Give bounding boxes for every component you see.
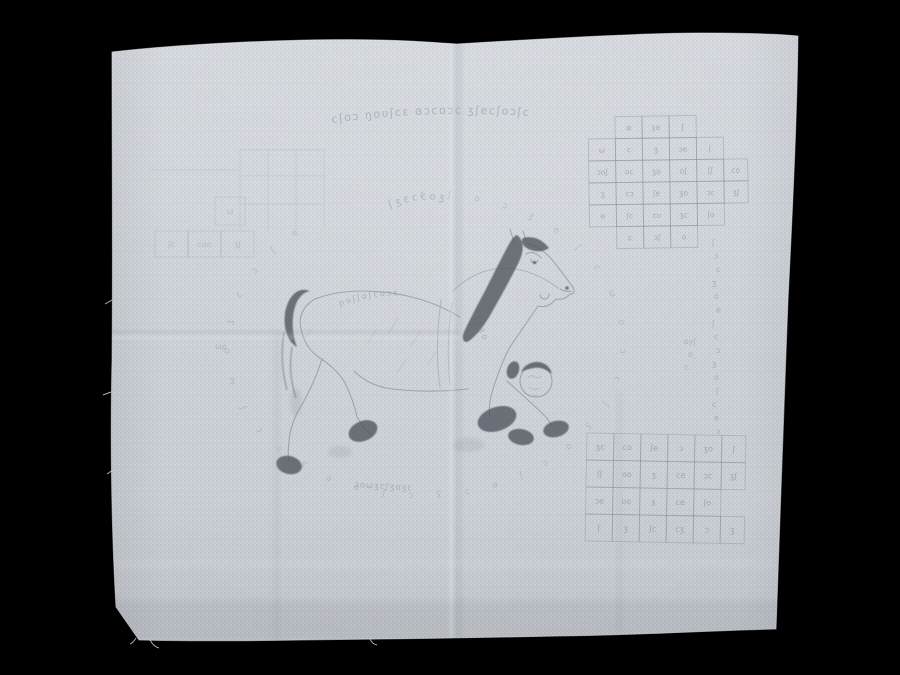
vertical-inscription-glyph: ʃ <box>711 319 715 328</box>
vertical-inscription-glyph: e <box>714 414 719 423</box>
grid-cell-numeral: ɔ <box>705 525 710 534</box>
grid-cell-numeral: ʒo <box>703 444 713 453</box>
grid-cell-numeral: co <box>731 166 740 175</box>
grid-cell-numeral: ʒʃ <box>234 240 242 249</box>
grid-cell-numeral: ʒʃ <box>733 188 740 197</box>
grid-cell-numeral: ʒ <box>654 145 658 154</box>
grid-cell-numeral: ω <box>599 146 605 155</box>
grid-cell-numeral: ʒ <box>730 526 735 535</box>
grid-cell-numeral: ʃe <box>652 189 661 198</box>
grid-cell-numeral: ɔoʃ <box>597 168 609 177</box>
grid-cell-numeral: ʒɞ <box>651 123 660 132</box>
grid-cell-numeral: ʃc <box>648 524 656 533</box>
grid-cell-numeral: cɔ <box>625 189 633 198</box>
grid-cell-numeral: ɔe <box>679 144 688 153</box>
grid-cell-numeral: ʒo <box>679 188 688 197</box>
grid-cell-numeral: ʃʃ <box>707 166 714 175</box>
photo-canvas: cʃoɔʒeʃcωoɔcʃʒocʃeɔʒcʃoeʒɔcʃωoʒcɔʃe cʃoɔ… <box>0 0 900 675</box>
horse-nostril-dot <box>565 286 568 289</box>
grid-cell-numeral: cʋ <box>653 211 662 220</box>
grid-cell-numeral: ɔ <box>679 444 684 453</box>
vertical-inscription-glyph: c <box>712 400 716 409</box>
side-note-glyph: c. <box>684 363 691 372</box>
vertical-inscription-glyph: c <box>716 265 720 274</box>
vertical-inscription-glyph: o <box>714 373 719 382</box>
grid-cell-numeral: ʒ <box>623 524 628 533</box>
grid-cell-numeral: oʃ <box>680 166 688 175</box>
grid-cell-numeral: ce <box>676 498 686 507</box>
grid-cell-numeral: ʃ <box>596 523 600 532</box>
grid-cell-numeral: ʋo <box>621 497 631 506</box>
grid-cell-numeral: o <box>682 232 687 241</box>
grid-cell-numeral: ɔc <box>703 471 712 480</box>
grid-cell-numeral: ɷ <box>626 123 632 132</box>
vertical-inscription-glyph: ɔ <box>716 346 720 355</box>
horse-eye-dot <box>533 261 536 264</box>
grid-cell-numeral: ce <box>676 471 686 480</box>
grid-cell-numeral: ʒo <box>652 167 661 176</box>
grid-cell-numeral: ʃo <box>702 498 711 507</box>
vertical-inscription-glyph: e <box>716 306 721 315</box>
grid-cell-numeral: ʒc <box>596 442 605 451</box>
grid-cell-numeral: ʃ <box>708 144 712 153</box>
vertical-inscription-glyph: ɔ <box>716 427 720 436</box>
grid-cell-numeral: ʒ <box>600 190 604 199</box>
grid-cell-numeral: ʋc <box>625 167 634 176</box>
grid-cell-numeral: ɔc <box>706 188 714 197</box>
grid-cell-numeral: co <box>623 443 633 452</box>
vertical-inscription-glyph: o <box>714 292 719 301</box>
grid-cell-numeral: ʃ <box>680 122 684 131</box>
bottom-fold-highlight <box>105 560 775 567</box>
grid-cell-numeral: oo <box>622 470 632 479</box>
grid-cell-numeral: ʒ <box>651 470 656 479</box>
grid-cell-numeral: ɔʃ <box>654 233 661 242</box>
side-note-glyph: ωρ <box>215 342 227 351</box>
side-note-glyph: ɷyʃ <box>683 337 697 346</box>
vertical-inscription-glyph: ʃ <box>711 238 715 247</box>
horizontal-crease-shadow <box>100 331 460 334</box>
grid-cell-numeral: ɔe <box>595 496 605 505</box>
grid-cell-numeral: ʃc <box>167 240 175 249</box>
horizontal-crease-highlight <box>100 335 460 339</box>
photo-of-yantra-cloth: cʃoɔʒeʃcωoɔcʃʒocʃeɔʒcʃoeʒɔcʃωoʒcɔʃe cʃoɔ… <box>0 0 900 675</box>
grid-cell-numeral: ʒ <box>651 497 656 506</box>
grid-cell-numeral: ʃo <box>706 210 715 219</box>
grid-cell-numeral: ʒc <box>680 210 689 219</box>
grid-cell-numeral: coo <box>197 240 211 249</box>
vertical-inscription-glyph: ʒ <box>712 279 717 288</box>
side-note-glyph: o˛ <box>688 350 697 359</box>
grid-cell-numeral: ʃ <box>731 445 735 454</box>
grid-cell-numeral: ʒʃ <box>730 472 738 481</box>
vertical-inscription-glyph: ʃ <box>715 387 719 396</box>
left-lower-crease <box>274 330 279 645</box>
grid-cell-numeral: e <box>601 212 606 221</box>
vertical-inscription-glyph: c <box>714 333 718 342</box>
grid-cell-numeral: ʃe <box>649 443 658 452</box>
grid-cell-numeral: c <box>628 233 632 242</box>
grid-cell-numeral: c <box>627 145 631 154</box>
vertical-inscription-glyph: ʒ <box>712 360 717 369</box>
grid-cell-numeral: ω <box>227 207 234 216</box>
grid-cell-numeral: cʒ <box>675 525 685 534</box>
grid-cell-numeral: ʃc <box>625 211 633 220</box>
grid-cell-numeral: ʃʃ <box>596 469 603 478</box>
vertical-inscription-glyph: ɔ <box>714 252 718 261</box>
